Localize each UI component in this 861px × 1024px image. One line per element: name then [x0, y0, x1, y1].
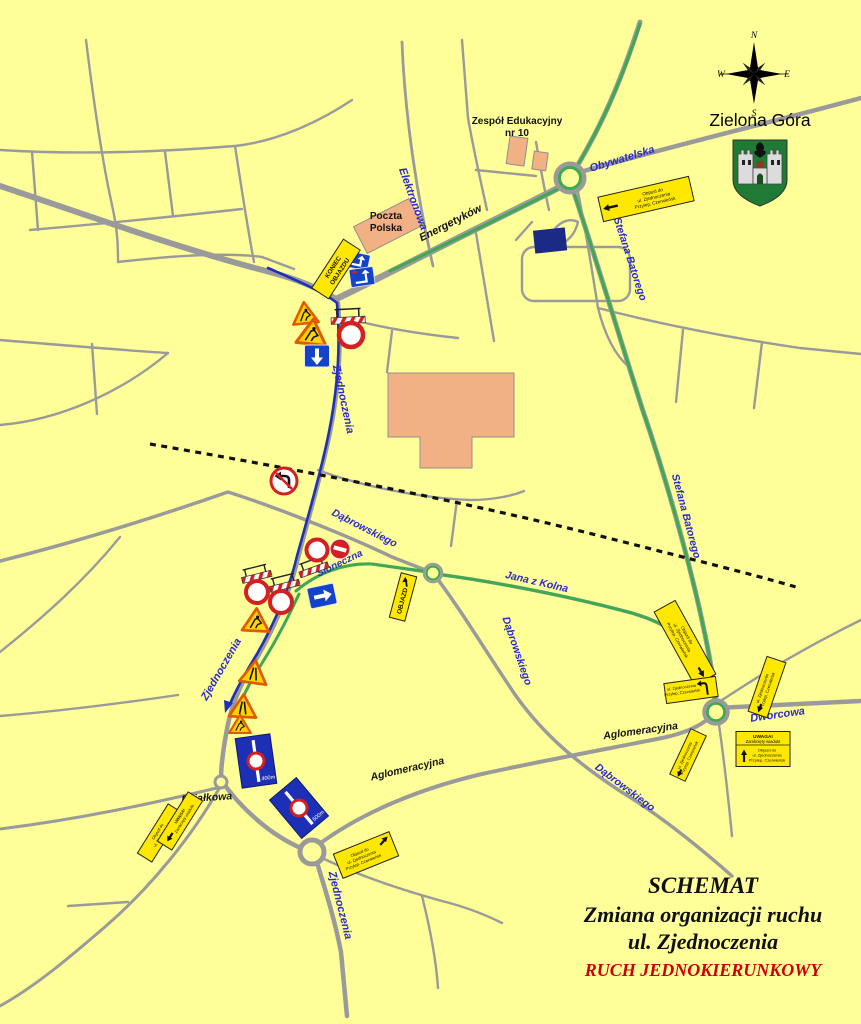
street-label-obywatelska: Obywatelska — [588, 144, 656, 175]
title-block: SCHEMAT Zmiana organizacji ruchu ul. Zje… — [545, 872, 861, 981]
no-traffic-sign — [270, 591, 292, 613]
svg-text:Przylep, Czerwieńsk: Przylep, Czerwieńsk — [749, 757, 785, 762]
railway-line — [150, 444, 796, 587]
detour-turn-board: ul. Zjednoczenia Przylep, Czerwieńsk — [663, 676, 718, 703]
detour-info-board: Objazd do ul. Zjednoczenia Przylep, Czer… — [598, 176, 694, 221]
no-left-turn-sign — [271, 468, 297, 494]
road-map-svg: N S W E Zielona Góra Zespół Edukacyjny n… — [0, 0, 861, 1024]
compass-e-label: E — [783, 70, 790, 80]
roadworks-warning-triangle — [242, 608, 270, 632]
buildings — [354, 136, 549, 468]
road-closed-ahead-600m-sign: 600m — [270, 778, 329, 839]
post-office-label-line1: Poczta — [370, 211, 403, 222]
depot-building — [533, 227, 567, 253]
school-building-1 — [506, 136, 528, 166]
detour-info-board: Objazd do ul. Zjednoczenia Przylep, Czer… — [333, 832, 398, 879]
school-label-line2: nr 10 — [505, 128, 529, 139]
street-label-aglomeracyjna-w: Aglomeracyjna — [368, 755, 445, 784]
school-label-line1: Zespół Edukacyjny — [472, 116, 563, 127]
one-way-down-sign — [305, 345, 330, 367]
no-traffic-sign — [307, 540, 328, 561]
detour-direction-sign — [349, 266, 375, 287]
road-closed-ahead-400m-sign: 400m — [235, 734, 277, 788]
detour-route-green — [233, 24, 716, 716]
mandatory-right-sign — [307, 583, 338, 609]
no-traffic-sign — [246, 581, 268, 603]
post-office-label-line2: Polska — [370, 223, 403, 234]
school-building-2 — [532, 151, 548, 171]
title-line4: RUCH JEDNOKIERUNKOWY — [545, 959, 861, 982]
compass-rose: N S W E — [717, 31, 790, 119]
street-label-dabrowskiego-se: Dąbrowskiego — [593, 761, 658, 814]
objazd-board: OBJAZD — [389, 573, 416, 622]
street-label-aglomeracyjna-e: Aglomeracyjna — [601, 720, 678, 743]
compass-n-label: N — [750, 31, 758, 41]
road-narrows-warning-triangle — [239, 659, 269, 685]
no-traffic-sign — [339, 323, 363, 347]
title-line1: SCHEMAT — [545, 872, 861, 901]
street-labels: Elektronowa Energetyków Obywatelska Stef… — [181, 144, 806, 941]
city-name: Zielona Góra — [709, 110, 810, 130]
map-canvas: N S W E Zielona Góra Zespół Edukacyjny n… — [0, 0, 861, 1024]
svg-text:Zamknięty wiadukt: Zamknięty wiadukt — [746, 739, 782, 744]
large-building — [388, 373, 514, 468]
city-crest — [733, 140, 787, 206]
compass-w-label: W — [717, 70, 726, 80]
road-network — [0, 22, 861, 1016]
warning-detour-table-board: UWAGA! Zamknięty wiadukt Objazd do ul. Z… — [736, 732, 790, 767]
title-line3: ul. Zjednoczenia — [545, 928, 861, 956]
title-line2: Zmiana organizacji ruchu — [545, 901, 861, 929]
